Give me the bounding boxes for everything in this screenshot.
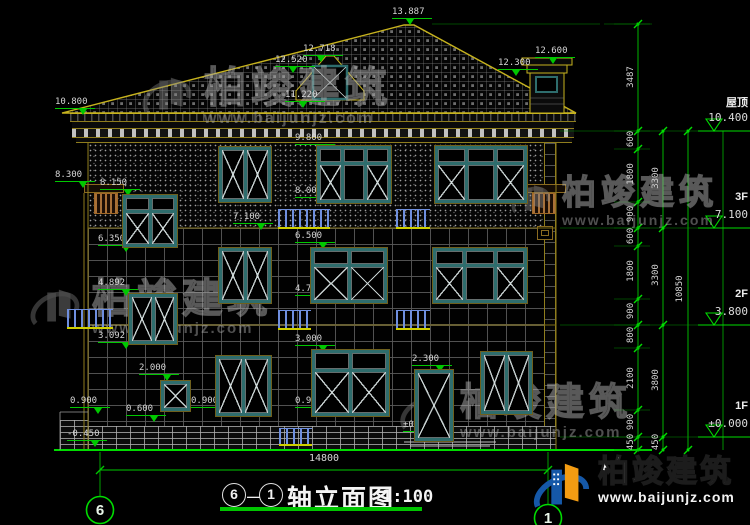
balcony-railing xyxy=(278,310,311,330)
chain-dimension-value: 3300 xyxy=(651,252,661,298)
window-pane xyxy=(152,198,175,210)
spot-elevation-value: -0.450 xyxy=(67,429,100,439)
spot-elevation-mark: 12.600 xyxy=(535,46,575,68)
level-elevation-value: 10.400 xyxy=(688,111,748,124)
elevation-marker-line xyxy=(126,415,166,416)
window xyxy=(122,194,178,248)
window-pane xyxy=(351,267,385,300)
window xyxy=(218,146,272,203)
window-pane xyxy=(245,359,268,413)
spot-elevation-value: 8.150 xyxy=(100,178,127,188)
window-pane xyxy=(352,372,386,413)
balcony-railing xyxy=(396,209,430,229)
elevation-marker-triangle xyxy=(299,102,307,112)
window-pane xyxy=(351,251,385,264)
chain-dimension-value: 800 xyxy=(626,312,636,358)
spot-elevation-mark: -0.450 xyxy=(67,429,107,451)
window-pane xyxy=(438,149,465,162)
window xyxy=(316,145,392,204)
window-pane xyxy=(344,149,365,162)
spot-elevation-mark: 12.520 xyxy=(275,55,315,77)
window xyxy=(128,293,178,345)
window-pane xyxy=(152,213,175,244)
spot-elevation-value: 0.600 xyxy=(126,404,153,414)
elevation-marker-triangle xyxy=(406,19,414,29)
window-pane xyxy=(315,353,349,369)
window-frame xyxy=(164,384,187,408)
window-pane xyxy=(438,165,465,200)
elevation-marker-line xyxy=(55,181,95,182)
window-pane xyxy=(320,149,341,162)
window-pane xyxy=(484,355,505,411)
window-pane xyxy=(436,267,463,300)
window-pane xyxy=(352,353,386,369)
window xyxy=(432,247,528,304)
spot-elevation-value: 12.600 xyxy=(535,46,568,56)
window-pane xyxy=(508,355,529,411)
right-coping xyxy=(522,184,566,193)
brand-logo-icon xyxy=(530,456,592,520)
axis-bubble-6-label: 6 xyxy=(85,502,115,519)
window-pane xyxy=(497,251,524,264)
elevation-marker-triangle xyxy=(79,109,87,119)
spot-elevation-value: 9.800 xyxy=(295,133,322,143)
window-pane xyxy=(247,150,269,199)
window-pane xyxy=(466,251,493,264)
level-elevation-value: 7.100 xyxy=(688,208,748,221)
window xyxy=(218,247,272,304)
level-elevation-value: 3.800 xyxy=(688,305,748,318)
window-frame xyxy=(418,373,450,438)
spot-elevation-value: 6.500 xyxy=(295,231,322,241)
window-pane xyxy=(344,165,365,200)
window-frame xyxy=(132,297,174,341)
window-pane xyxy=(314,267,348,300)
chain-dimension-value: 450 xyxy=(626,419,636,465)
window xyxy=(310,247,388,304)
window-frame xyxy=(222,251,268,300)
title-dash: — xyxy=(247,489,260,504)
spot-elevation-value: 4.892 xyxy=(98,278,125,288)
spot-elevation-value: 2.300 xyxy=(412,354,439,364)
elevation-marker-triangle xyxy=(94,408,102,418)
window-pane xyxy=(367,165,388,200)
elevation-marker-triangle xyxy=(289,67,297,77)
window-pane xyxy=(126,213,149,244)
window-pane xyxy=(315,372,349,413)
window-frame xyxy=(315,353,386,413)
spot-elevation-value: 8.300 xyxy=(55,170,82,180)
window-pane xyxy=(436,251,463,264)
cad-elevation-drawing: 6 1 柏竣建筑 www.baijunjz.com 柏竣建筑 www.baiju… xyxy=(0,0,750,525)
spot-elevation-value: 0.900 xyxy=(70,396,97,406)
spot-elevation-mark: 10.800 xyxy=(55,97,95,119)
elevation-marker-line xyxy=(295,345,335,346)
window-frame xyxy=(436,251,524,300)
level-name: 1F xyxy=(688,400,748,412)
balcony-railing xyxy=(279,428,312,446)
window-frame xyxy=(126,198,174,244)
window-pane xyxy=(497,165,524,200)
window-pane xyxy=(222,150,244,199)
foundation-brick xyxy=(88,426,556,450)
elevation-marker-line xyxy=(70,407,110,408)
elevation-marker-line xyxy=(98,289,138,290)
spot-elevation-value: 3.092 xyxy=(98,331,125,341)
spot-elevation-value: 2.000 xyxy=(139,363,166,373)
elevation-marker-triangle xyxy=(150,416,158,426)
spot-elevation-mark: 7.100 xyxy=(233,212,273,234)
elevation-marker-triangle xyxy=(549,58,557,68)
level-name: 3F xyxy=(688,191,748,203)
spot-elevation-value: 12.520 xyxy=(275,55,308,65)
window-pane xyxy=(497,267,524,300)
window-pane xyxy=(219,359,242,413)
window-pane xyxy=(314,251,348,264)
window xyxy=(311,349,390,417)
elevation-marker-line xyxy=(100,189,140,190)
spot-elevation-mark: 13.887 xyxy=(392,7,432,29)
chain-dimension-value: 3487 xyxy=(626,54,636,100)
window-pane xyxy=(164,384,187,408)
elevation-marker-triangle xyxy=(317,56,325,66)
chain-dimension-value: 10850 xyxy=(675,266,685,312)
brand-logo: 柏竣建筑 www.baijunjz.com xyxy=(530,456,735,520)
window-frame xyxy=(438,149,524,200)
window xyxy=(160,380,191,412)
window-frame xyxy=(219,359,268,413)
chain-dimension-value: 450 xyxy=(651,419,661,465)
chain-dimension-value: 2100 xyxy=(626,355,636,401)
spot-elevation-mark: 0.900 xyxy=(70,396,110,418)
spot-elevation-value: 7.100 xyxy=(233,212,260,222)
window xyxy=(215,355,272,417)
spot-elevation-value: 13.887 xyxy=(392,7,425,17)
elevation-marker-triangle xyxy=(91,441,99,451)
cornice-band xyxy=(72,122,574,129)
title-axis-bubble-end: 1 xyxy=(259,483,283,507)
elevation-marker-triangle xyxy=(512,70,520,80)
balcony-railing xyxy=(396,310,430,330)
total-width-dimension: 14800 xyxy=(294,453,354,464)
title-axis-bubble-start: 6 xyxy=(222,483,246,507)
window-pane xyxy=(247,251,269,300)
level-name: 屋顶 xyxy=(688,94,748,110)
elevation-marker-line xyxy=(55,108,95,109)
window-pane xyxy=(418,373,450,438)
window-pane xyxy=(466,267,493,300)
window-pane xyxy=(367,149,388,162)
level-name: 2F xyxy=(688,288,748,300)
spot-elevation-value: 10.800 xyxy=(55,97,88,107)
dimension-chain-lines xyxy=(638,24,688,450)
spot-elevation-mark: 11.220 xyxy=(285,90,325,112)
window-pane xyxy=(468,149,495,162)
window-frame xyxy=(484,355,529,411)
window-frame xyxy=(222,150,268,199)
spot-elevation-value: 12.300 xyxy=(498,58,531,68)
window-pane xyxy=(132,297,152,341)
window-pane xyxy=(222,251,244,300)
window-pane xyxy=(468,165,495,200)
window-pane xyxy=(155,297,175,341)
right-louver-vent xyxy=(532,193,556,214)
level-elevation-value: ±0.000 xyxy=(688,417,748,430)
spot-elevation-mark: 12.300 xyxy=(498,58,538,80)
spot-elevation-value: 3.000 xyxy=(295,334,322,344)
elevation-marker-line xyxy=(233,223,273,224)
wall-ornament xyxy=(537,226,553,240)
chain-dimension-value: 3300 xyxy=(651,155,661,201)
drawing-scale: 1:100 xyxy=(382,487,433,507)
spot-elevation-value: 11.220 xyxy=(285,90,318,100)
spot-elevation-mark: 8.300 xyxy=(55,170,95,192)
elevation-marker-line xyxy=(139,374,179,375)
window-frame xyxy=(314,251,384,300)
brand-url: www.baijunjz.com xyxy=(598,489,735,505)
balcony-railing xyxy=(67,309,113,329)
entry-door xyxy=(414,369,454,442)
brand-company: 柏竣建筑 xyxy=(598,456,735,489)
window xyxy=(434,145,528,204)
window-frame xyxy=(320,149,388,200)
roof-fascia-band xyxy=(70,113,576,122)
title-underline xyxy=(220,507,422,511)
balcony-railing xyxy=(278,209,330,229)
elevation-marker-line xyxy=(295,242,335,243)
window xyxy=(480,351,533,415)
window-pane xyxy=(320,165,341,200)
elevation-marker-line xyxy=(412,365,452,366)
chain-dimension-value: 3800 xyxy=(651,357,661,403)
elevation-marker-triangle xyxy=(79,182,87,192)
spot-elevation-value: 12.718 xyxy=(303,44,336,54)
elevation-marker-triangle xyxy=(257,224,265,234)
window-pane xyxy=(126,198,149,210)
elevation-marker-line xyxy=(67,440,107,441)
window-pane xyxy=(497,149,524,162)
